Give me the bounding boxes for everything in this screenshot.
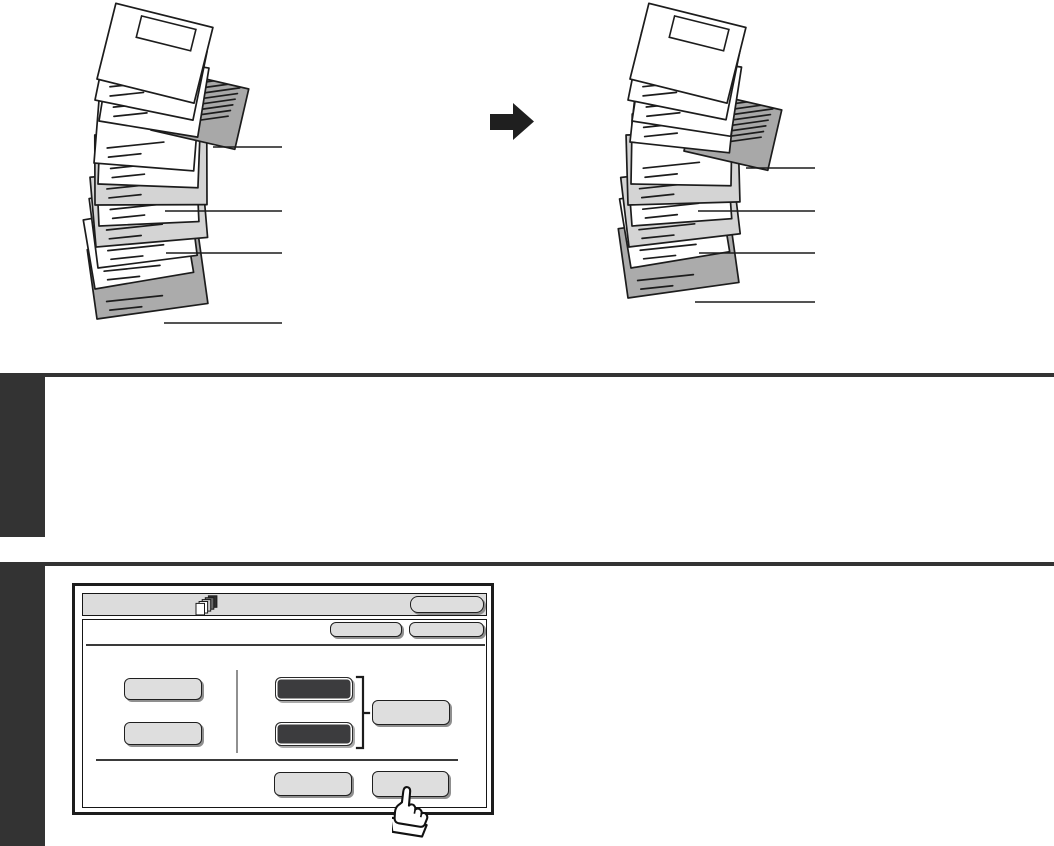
cancel-button[interactable]	[274, 772, 352, 796]
section-divider-2	[0, 562, 1054, 566]
group-target-button[interactable]	[372, 700, 450, 725]
stack-before	[83, 3, 282, 323]
section-tab-2	[0, 566, 45, 846]
stacked-pages-icon	[195, 595, 219, 616]
selected-button-1[interactable]	[275, 677, 353, 701]
toolbar-button-2[interactable]	[409, 622, 484, 637]
option-button-1[interactable]	[124, 678, 202, 700]
panel-vertical-divider	[236, 670, 238, 753]
right-arrow-icon	[490, 103, 534, 140]
selected-button-2[interactable]	[275, 722, 353, 746]
grouping-bracket	[353, 673, 373, 753]
insert-position-illustration	[0, 0, 1054, 365]
toolbar-button-1[interactable]	[330, 622, 402, 637]
panel-separator-bottom	[96, 759, 458, 761]
panel-separator-top	[86, 644, 485, 646]
section-tab-1	[0, 377, 45, 537]
manual-page: { "page": { "background": "#ffffff" }, "…	[0, 0, 1054, 846]
header-button[interactable]	[410, 596, 484, 613]
option-button-2[interactable]	[124, 722, 202, 745]
pointing-hand-icon	[392, 786, 442, 840]
section-divider-1	[0, 373, 1054, 377]
stack-after	[618, 3, 815, 302]
